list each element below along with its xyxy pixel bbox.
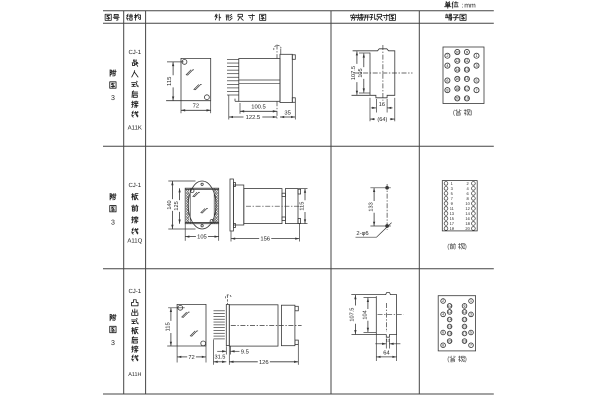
svg-text:9.5: 9.5 [241, 348, 249, 355]
svg-text:107.5: 107.5 [350, 308, 356, 322]
svg-text:12: 12 [455, 59, 459, 63]
svg-text:13: 13 [465, 68, 469, 72]
svg-text:CJ-1: CJ-1 [128, 182, 141, 189]
svg-text:122.5: 122.5 [246, 114, 261, 121]
svg-text:72: 72 [188, 354, 194, 361]
svg-text:1: 1 [470, 299, 472, 303]
svg-text:(64): (64) [377, 116, 387, 123]
svg-text:mm: mm [464, 2, 476, 9]
svg-text::: : [461, 2, 463, 9]
svg-text:20: 20 [448, 339, 452, 343]
svg-text:9: 9 [464, 304, 466, 308]
svg-text:19: 19 [465, 97, 469, 101]
svg-text:31.5: 31.5 [214, 354, 225, 360]
svg-text:115: 115 [300, 202, 306, 211]
svg-text:15: 15 [463, 325, 467, 329]
svg-text:12: 12 [448, 310, 452, 314]
svg-text:8: 8 [446, 88, 448, 92]
svg-text:133: 133 [369, 202, 375, 211]
svg-text:17: 17 [465, 87, 469, 91]
svg-text:A11H: A11H [128, 372, 141, 378]
svg-text:): ) [465, 356, 467, 363]
svg-text:126: 126 [259, 359, 269, 366]
svg-text:12: 12 [386, 339, 390, 343]
svg-text:11: 11 [465, 59, 469, 63]
svg-text:6: 6 [446, 79, 448, 83]
svg-text:CJ-1: CJ-1 [128, 288, 141, 295]
svg-text:3: 3 [111, 219, 115, 226]
svg-text:100.5: 100.5 [251, 104, 266, 111]
svg-text:1: 1 [475, 54, 477, 58]
svg-text:A11Q: A11Q [127, 238, 142, 245]
svg-text:14: 14 [455, 68, 459, 72]
svg-text:18: 18 [448, 332, 452, 336]
svg-text:A11K: A11K [128, 125, 142, 132]
svg-text:16: 16 [455, 77, 459, 81]
svg-text:10: 10 [455, 50, 459, 54]
svg-text:4: 4 [446, 64, 448, 68]
svg-text:2: 2 [446, 54, 448, 58]
svg-text:19: 19 [463, 339, 467, 343]
svg-text:2: 2 [442, 299, 444, 303]
svg-text:): ) [465, 244, 467, 251]
svg-text:115: 115 [165, 322, 171, 331]
svg-text:16: 16 [379, 102, 385, 108]
svg-text:35: 35 [284, 109, 290, 116]
svg-text:19: 19 [450, 226, 455, 231]
svg-text:10: 10 [448, 304, 452, 308]
svg-text:5: 5 [470, 331, 472, 335]
svg-text:14: 14 [448, 318, 452, 322]
svg-text:3: 3 [475, 64, 477, 68]
svg-text:4: 4 [442, 313, 444, 317]
svg-text:72: 72 [193, 103, 199, 110]
svg-text:140: 140 [167, 200, 173, 209]
svg-text:156: 156 [260, 236, 270, 243]
svg-text:9: 9 [466, 50, 468, 54]
svg-text:2-φ6: 2-φ6 [356, 230, 368, 237]
svg-text:16: 16 [448, 325, 452, 329]
svg-text:7: 7 [470, 343, 472, 347]
svg-text:13: 13 [463, 318, 467, 322]
svg-text:3: 3 [470, 313, 472, 317]
svg-text:CJ-1: CJ-1 [128, 49, 141, 56]
svg-text:105: 105 [197, 234, 207, 241]
svg-text:5: 5 [475, 79, 477, 83]
svg-text:64: 64 [383, 349, 390, 356]
svg-text:3: 3 [111, 340, 115, 347]
svg-text:18: 18 [455, 87, 459, 91]
svg-text:125: 125 [174, 201, 180, 210]
svg-text:6: 6 [442, 331, 444, 335]
svg-text:8: 8 [442, 343, 444, 347]
svg-text:): ) [470, 110, 472, 117]
svg-text:11: 11 [463, 310, 467, 314]
svg-text:20: 20 [455, 97, 459, 101]
svg-text:20: 20 [465, 226, 470, 231]
svg-text:15: 15 [465, 77, 469, 81]
svg-text:3: 3 [111, 95, 115, 102]
svg-text:7: 7 [475, 88, 477, 92]
svg-text:17: 17 [463, 332, 467, 336]
svg-text:115: 115 [167, 77, 173, 86]
svg-text:104: 104 [362, 310, 368, 319]
